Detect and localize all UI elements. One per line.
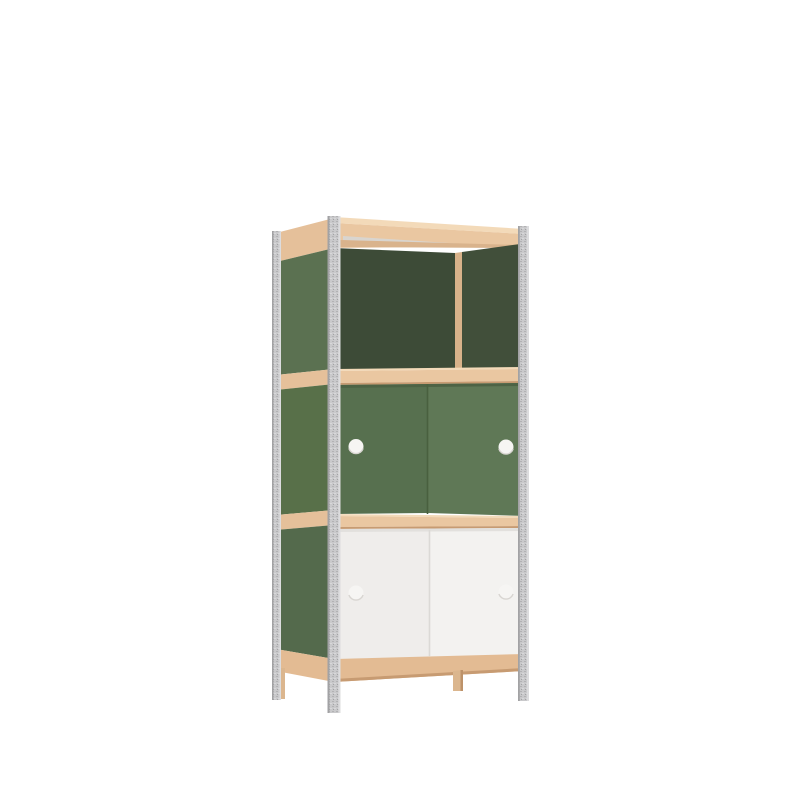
rear-middle-wood-leg-shade [461, 670, 464, 691]
open-compartment-back-panel-left [334, 248, 455, 369]
post-front-right-edge-dark [518, 226, 520, 701]
open-compartment-wood-divider [455, 252, 462, 369]
post-front-right [518, 226, 529, 701]
middle-shelf-band [334, 369, 524, 383]
product-image-canvas [0, 0, 800, 800]
furniture-render [0, 0, 800, 800]
side-green-lower [276, 525, 334, 659]
white-sliding-door-left [334, 529, 430, 659]
rear-middle-wood-leg [453, 670, 463, 691]
post-back-left [272, 231, 281, 700]
post-back-left-edge-dark [272, 231, 274, 700]
green-sliding-door-left [334, 384, 428, 514]
post-front-left-edge-dark [328, 216, 330, 713]
post-front-left [328, 216, 341, 713]
side-green-upper [276, 248, 334, 375]
left-side-panel [275, 218, 334, 699]
post-front-left-edge-light [339, 216, 341, 713]
post-front-right-edge-light [527, 226, 529, 701]
side-green-mid [276, 384, 334, 515]
open-compartment-back-panel-right [462, 244, 520, 369]
post-back-left-edge-light [280, 231, 282, 700]
